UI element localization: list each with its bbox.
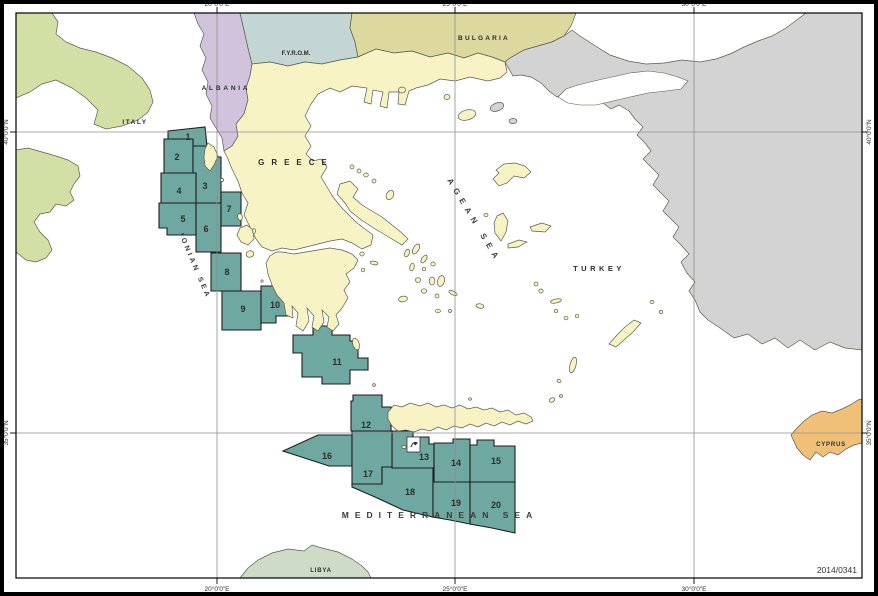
island-mykonos — [431, 262, 436, 266]
block-17-number: 17 — [363, 469, 373, 479]
island-aegina — [360, 252, 364, 256]
label-greece: GREECE — [258, 158, 334, 167]
block-19-number: 19 — [451, 498, 461, 508]
label-mediterranean-sea: MEDITERRANEAN SEA — [342, 510, 538, 520]
axis-bottom-25e: 25°0'0"E — [443, 585, 469, 593]
block-6-number: 6 — [203, 224, 208, 234]
label-albania: ALBANIA — [202, 85, 251, 92]
island-sporades-4 — [372, 179, 376, 183]
island-syros — [422, 267, 426, 271]
island-santorini — [436, 309, 441, 313]
country-fyrom — [240, 13, 358, 66]
axis-bottom-30e: 30°0'0"E — [682, 585, 708, 593]
axis-right-40n: 40°0'0"N — [865, 119, 873, 145]
block-7-number: 7 — [226, 204, 231, 214]
block-15-number: 15 — [491, 456, 501, 466]
island-kalymnos — [539, 289, 543, 293]
block-20-number: 20 — [491, 500, 501, 510]
block-1-number: 1 — [185, 132, 190, 142]
island-gavdos — [402, 446, 406, 449]
island-symi — [575, 314, 579, 318]
label-fyrom: F.Y.R.O.M. — [282, 51, 311, 57]
axis-bottom-20e: 20°0'0"E — [205, 585, 231, 593]
block-5-number: 5 — [180, 214, 185, 224]
island-ios — [435, 294, 439, 298]
island-samothraki — [444, 95, 450, 100]
island-paros — [429, 277, 435, 285]
island-spetses — [361, 268, 365, 272]
island-thasos — [399, 87, 406, 93]
block-14-number: 14 — [451, 458, 461, 468]
island-bozcaada — [509, 119, 517, 124]
island-antikythira — [373, 384, 376, 387]
island-dia — [469, 398, 472, 400]
island-anafi — [449, 310, 452, 313]
island-paxos — [220, 178, 223, 181]
block-12-number: 12 — [361, 420, 371, 430]
block-18-number: 18 — [405, 487, 415, 497]
island-sporades-3 — [364, 173, 369, 177]
island-leros — [534, 282, 538, 286]
label-bulgaria: BULGARIA — [458, 35, 510, 42]
island-ithaki — [253, 229, 256, 234]
block-9-number: 9 — [240, 304, 245, 314]
block-16-number: 16 — [322, 451, 332, 461]
island-serifos — [415, 278, 420, 283]
label-cyprus: CYPRUS — [816, 442, 846, 448]
island-sifnos — [421, 289, 426, 293]
block-11-number: 11 — [332, 357, 342, 367]
block-8-number: 8 — [224, 267, 229, 277]
island-tilos — [564, 316, 568, 320]
block-2-number: 2 — [174, 152, 179, 162]
block-10-number: 10 — [270, 300, 280, 310]
island-ne-crete-2 — [559, 395, 562, 398]
block-3-number: 3 — [202, 181, 207, 191]
label-libya: LIBYA — [310, 568, 331, 574]
island-sporades-2 — [357, 169, 361, 173]
island-e-aegean-1 — [650, 300, 654, 303]
label-italy: ITALY — [122, 119, 147, 126]
island-psara — [484, 213, 488, 216]
label-turkey: TURKEY — [573, 264, 625, 273]
block-4-number: 4 — [176, 186, 181, 196]
island-sporades-1 — [350, 165, 354, 169]
island-nisyros — [554, 309, 558, 313]
map-page: 20°0'0"E 25°0'0"E 30°0'0"E 20°0'0"E 25°0… — [0, 0, 878, 596]
block-13-number: 13 — [419, 452, 429, 462]
map-canvas: 20°0'0"E 25°0'0"E 30°0'0"E 20°0'0"E 25°0… — [0, 0, 878, 596]
island-e-aegean-2 — [659, 311, 663, 314]
block-13-marker — [407, 437, 420, 452]
map-code: 2014/0341 — [817, 565, 857, 575]
axis-right-35n: 35°0'0"N — [865, 420, 873, 446]
island-strofades — [261, 280, 263, 282]
